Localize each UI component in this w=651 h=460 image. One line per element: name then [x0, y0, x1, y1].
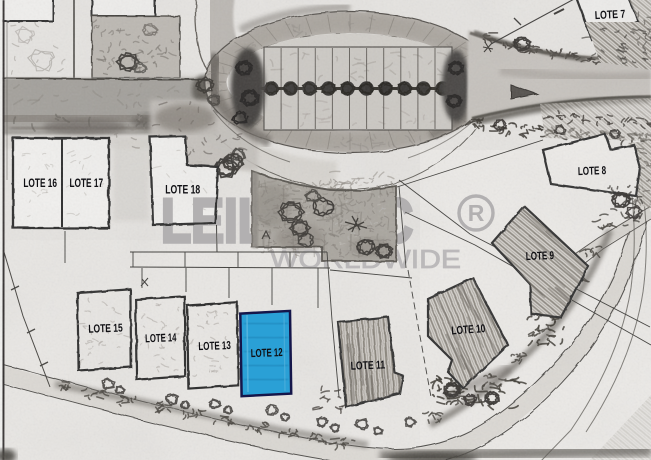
svg-text:LOTE 9: LOTE 9 — [526, 250, 555, 263]
svg-text:LOTE 14: LOTE 14 — [145, 332, 177, 345]
svg-text:LOTE 16: LOTE 16 — [23, 178, 57, 190]
svg-text:LOTE 7: LOTE 7 — [595, 9, 626, 23]
svg-text:LOTE 11: LOTE 11 — [350, 359, 385, 372]
svg-text:LOTE 12: LOTE 12 — [251, 347, 283, 360]
svg-text:LOTE 15: LOTE 15 — [88, 322, 123, 335]
svg-text:LOTE 8: LOTE 8 — [578, 165, 607, 178]
svg-text:LOTE 13: LOTE 13 — [198, 340, 231, 353]
svg-text:LOTE 17: LOTE 17 — [69, 178, 103, 190]
svg-text:WORLDWIDE: WORLDWIDE — [270, 244, 461, 274]
svg-text:R: R — [468, 200, 485, 226]
svg-text:LOTE 10: LOTE 10 — [451, 323, 486, 337]
